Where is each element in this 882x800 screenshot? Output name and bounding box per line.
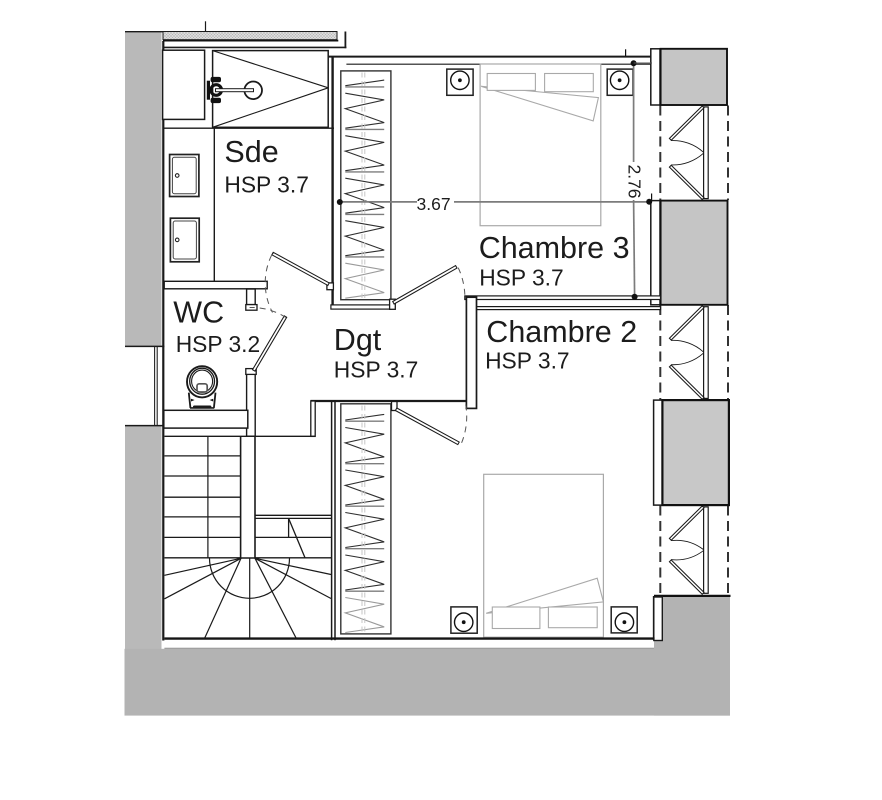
svg-text:HSP 3.7: HSP 3.7 (224, 172, 309, 198)
svg-text:WC: WC (173, 296, 224, 330)
svg-text:Chambre 2: Chambre 2 (486, 315, 637, 349)
svg-text:HSP 3.7: HSP 3.7 (334, 357, 419, 383)
svg-text:Sde: Sde (224, 135, 278, 169)
svg-text:Chambre 3: Chambre 3 (479, 231, 630, 265)
svg-text:HSP 3.7: HSP 3.7 (479, 265, 564, 291)
svg-text:HSP 3.7: HSP 3.7 (485, 348, 569, 374)
svg-text:Dgt: Dgt (334, 323, 382, 357)
svg-text:3.67: 3.67 (417, 194, 451, 214)
svg-text:HSP 3.2: HSP 3.2 (176, 331, 261, 357)
svg-text:2.76: 2.76 (624, 164, 644, 198)
